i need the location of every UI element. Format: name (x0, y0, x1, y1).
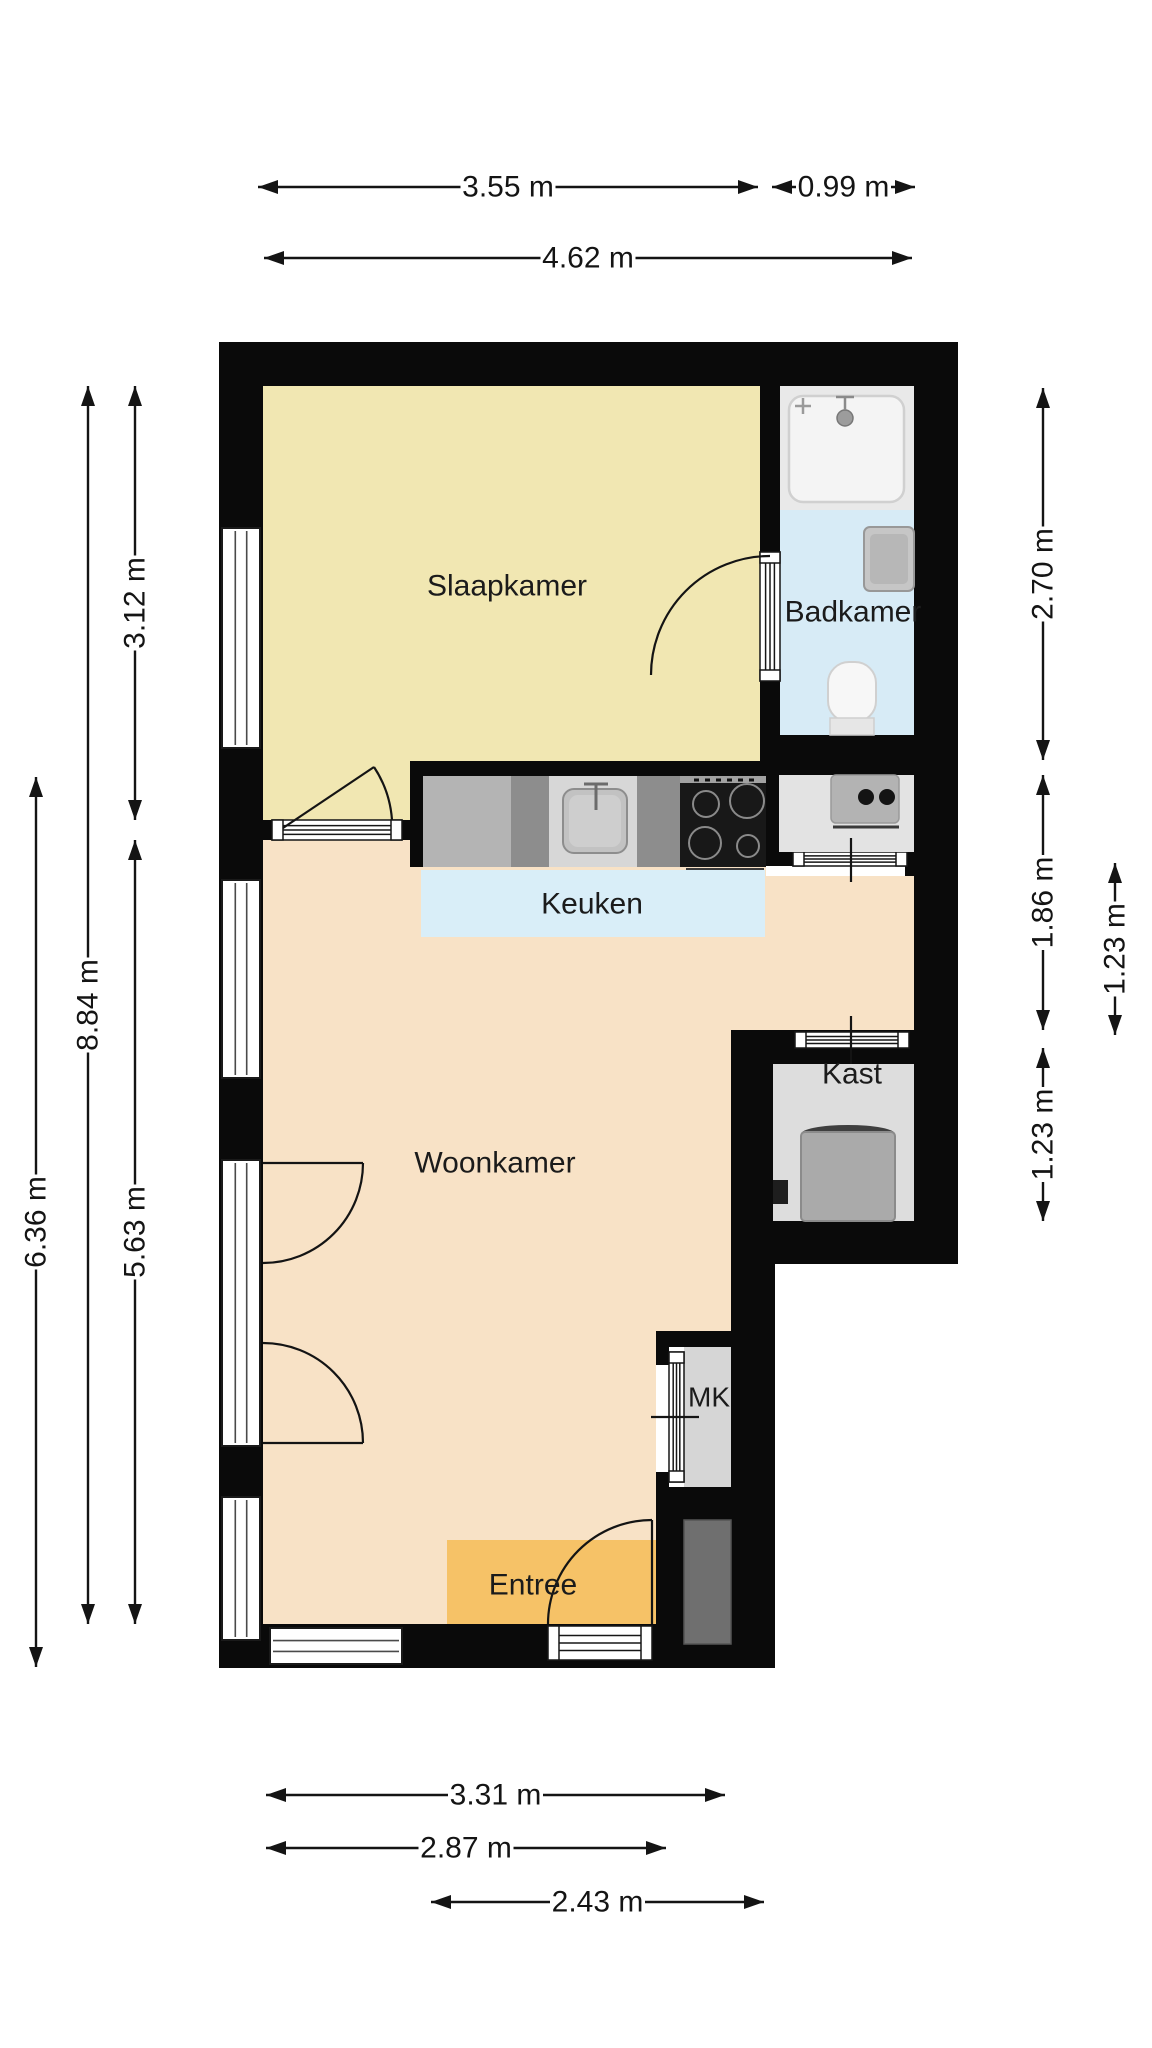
toilet-base (830, 718, 874, 735)
room-label-slaapkamer: Slaapkamer (427, 570, 587, 603)
dim-arrow-left (266, 1841, 286, 1855)
dimension-value: 1.23 m (1027, 1089, 1060, 1181)
door-kast-threshold-cap-0 (795, 1032, 806, 1048)
dim-arrow-up (1036, 1048, 1050, 1068)
kitchen-cabinet (423, 776, 511, 867)
door-bedroom-threshold-cap-0 (272, 820, 283, 840)
wall-mk-bottom (656, 1487, 731, 1520)
shower-head-icon (837, 410, 853, 426)
dimension-value: 6.36 m (20, 1176, 53, 1268)
dimension-value: 2.87 m (420, 1832, 512, 1865)
dim-arrow-right (895, 180, 915, 194)
window-bottom (270, 1628, 402, 1664)
floor-plan-page: SlaapkamerBadkamerWoonkamerKeukenKastMKE… (0, 0, 1152, 2048)
dimension-value: 3.55 m (462, 171, 554, 204)
room-label-kast: Kast (822, 1058, 883, 1091)
wall-mk-left-top (656, 1331, 669, 1365)
dim-arrow-up (128, 840, 142, 860)
kitchen-cabinet-dark-1 (511, 776, 549, 867)
dim-arrow-down (128, 1604, 142, 1624)
dim-arrow-down (1036, 740, 1050, 760)
dimension-value: 3.12 m (119, 557, 152, 649)
dim-arrow-up (81, 386, 95, 406)
dim-arrow-up (128, 386, 142, 406)
dim-arrow-left (264, 251, 284, 265)
kitchen-cabinet-dark-2 (637, 776, 680, 867)
window-left-3 (222, 1497, 260, 1640)
door-nook-threshold-cap-0 (793, 852, 804, 866)
dim-arrow-left (431, 1895, 451, 1909)
room-label-keuken: Keuken (541, 888, 643, 921)
dimension-value: 2.70 m (1027, 528, 1060, 620)
dim-arrow-right (744, 1895, 764, 1909)
dimension-value: 1.23 m (1099, 903, 1132, 995)
balcony-door-opening (222, 1160, 260, 1446)
dim-arrow-down (29, 1647, 43, 1667)
door-nook-threshold-cap-1 (896, 852, 907, 866)
dimension-value: 1.86 m (1027, 857, 1060, 949)
dim-arrow-up (1036, 388, 1050, 408)
dim-arrow-up (1036, 775, 1050, 795)
room-label-woonkamer: Woonkamer (414, 1147, 575, 1180)
window-left-1 (222, 528, 260, 748)
dim-arrow-down (1036, 1010, 1050, 1030)
dimension-value: 3.31 m (450, 1779, 542, 1812)
door-bathroom-threshold-cap-1 (760, 670, 780, 681)
door-bedroom-threshold-cap-1 (391, 820, 402, 840)
dim-arrow-left (258, 180, 278, 194)
dim-arrow-left (266, 1788, 286, 1802)
door-entry-threshold-cap-0 (548, 1626, 559, 1660)
dimension-value: 2.43 m (552, 1886, 644, 1919)
kast-duct (773, 1180, 788, 1204)
door-entry-threshold-cap-1 (641, 1626, 652, 1660)
dimension-value: 8.84 m (72, 959, 105, 1051)
door-mk-threshold-cap-0 (669, 1352, 684, 1363)
bathroom-basin-inner (870, 534, 908, 584)
dimension-value: 0.99 m (798, 171, 890, 204)
shaft (684, 1520, 731, 1644)
window-left-2 (222, 880, 260, 1078)
nook-basin-dot-1 (858, 789, 874, 805)
dim-arrow-up (29, 777, 43, 797)
dim-arrow-right (738, 180, 758, 194)
door-mk-threshold-cap-1 (669, 1471, 684, 1482)
nook-basin-dot-2 (879, 789, 895, 805)
dim-arrow-right (646, 1841, 666, 1855)
dim-arrow-down (128, 800, 142, 820)
dim-arrow-down (81, 1604, 95, 1624)
dimension-value: 4.62 m (542, 242, 634, 275)
toilet-bowl (828, 662, 876, 722)
wall-kast-bottom (731, 1221, 958, 1264)
room-label-mk: MK (688, 1382, 730, 1413)
dim-arrow-right (892, 251, 912, 265)
door-bathroom-threshold-cap-0 (760, 552, 780, 563)
floor-plan-svg: SlaapkamerBadkamerWoonkamerKeukenKastMKE… (0, 0, 1152, 2048)
wall-kitchen-top (410, 761, 790, 776)
door-kast-threshold-cap-1 (898, 1032, 909, 1048)
wall-shaft-left (656, 1520, 684, 1624)
wall-top (219, 342, 958, 386)
wall-counter-left (410, 761, 423, 867)
dimension-value: 5.63 m (119, 1186, 152, 1278)
dim-arrow-down (1036, 1201, 1050, 1221)
wall-right-upper (914, 342, 958, 1264)
room-label-badkamer: Badkamer (785, 596, 922, 629)
room-label-entree: Entree (489, 1569, 577, 1602)
dim-arrow-down (1108, 1015, 1122, 1035)
wall-right-lower (731, 1264, 775, 1668)
boiler (801, 1132, 895, 1221)
dim-arrow-left (772, 180, 792, 194)
dim-arrow-up (1108, 863, 1122, 883)
room-slaapkamer (263, 386, 760, 820)
dim-arrow-right (705, 1788, 725, 1802)
